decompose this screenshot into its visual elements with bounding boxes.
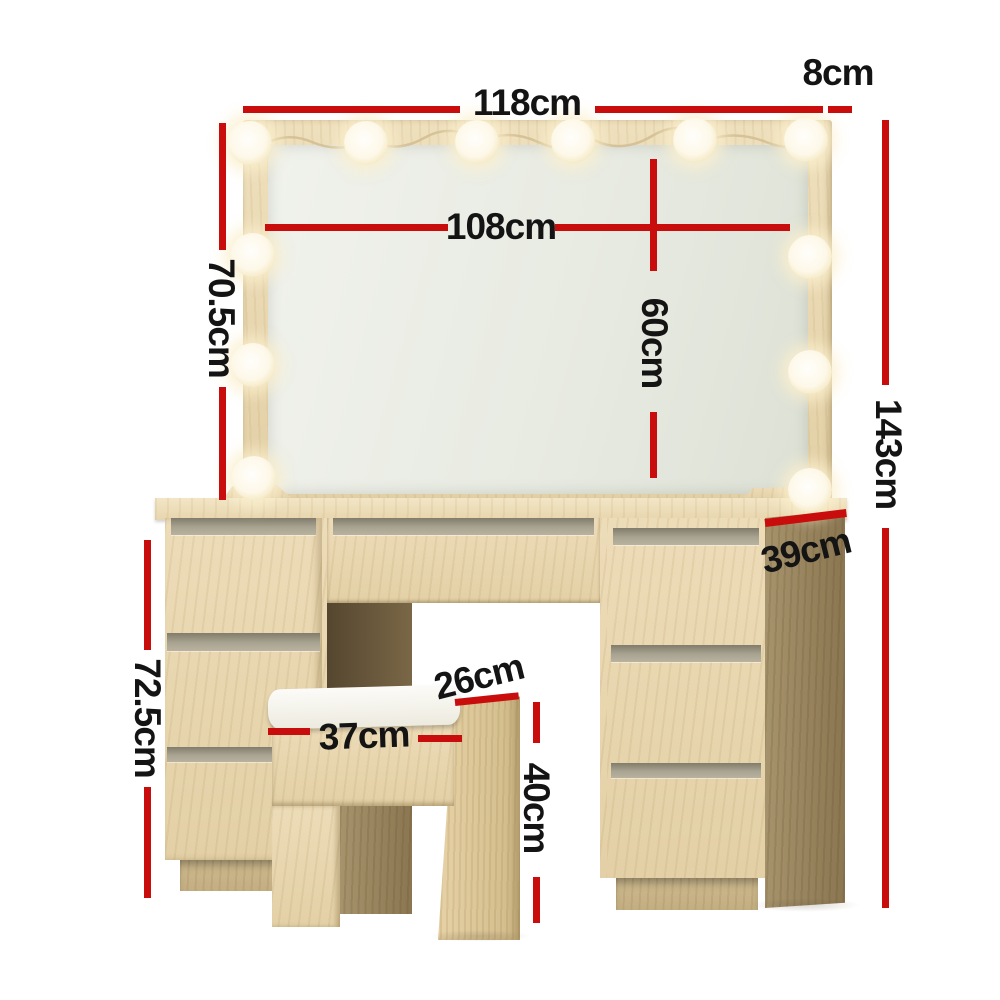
stool-left-leg [272,806,340,927]
dimension-line-72-5cm [144,787,151,898]
dimension-line-70-5cm [219,387,226,500]
dimension-line-37cm [418,735,462,742]
dimension-line-143cm [882,528,889,908]
dimension-line-8cm [828,106,852,113]
dimension-line-108cm [265,224,448,231]
mirror-glass [268,145,808,494]
light-bulb-icon [788,468,832,512]
light-bulb-icon [551,119,595,163]
dimension-line-60cm [650,159,657,271]
light-bulb-icon [784,118,828,162]
dimension-line-72-5cm [144,540,151,650]
dimension-label-60cm: 60cm [633,298,675,389]
desk-top [155,498,847,520]
dimension-line-37cm [268,728,310,735]
dimension-label-72-5cm: 72.5cm [126,658,168,778]
drawer-groove [167,633,320,651]
dimension-line-60cm [650,412,657,478]
desk-right-pedestal [607,518,765,878]
desk-floor-shadow [750,898,860,912]
drawer-groove [611,763,761,778]
dimension-label-108cm: 108cm [446,206,556,248]
dimension-label-37cm: 37cm [318,713,410,758]
dimension-label-8cm: 8cm [802,52,873,94]
dimension-line-70-5cm [219,123,226,250]
stool-inner-leg [340,806,412,914]
dimension-label-70-5cm: 70.5cm [200,258,242,378]
dimension-line-108cm [555,224,790,231]
light-bulb-icon [232,456,276,500]
drawer-groove [171,518,316,535]
desk-carcass-strip-right [600,518,607,878]
stool-floor-shadow [428,930,532,942]
dressing-table-dimension-diagram: 118cm 8cm 108cm 70.5cm 60cm 143cm 39cm 7… [0,0,1000,1000]
dimension-line-118cm [595,106,823,113]
light-cable [256,124,820,160]
light-bulb-icon [344,121,388,165]
dimension-line-40cm [533,877,540,923]
dimension-label-40cm: 40cm [515,763,557,854]
light-bulb-icon [455,120,499,164]
drawer-groove [613,528,759,545]
light-bulb-icon [228,121,272,165]
drawer-groove [333,518,594,535]
dimension-line-40cm [533,702,540,743]
light-bulb-icon [673,118,717,162]
drawer-groove [611,645,761,662]
light-bulb-icon [788,350,832,394]
right-pedestal-base [616,878,758,910]
light-bulb-icon [788,235,832,279]
dimension-line-118cm [243,106,460,113]
dimension-line-143cm [882,120,889,385]
dimension-label-118cm: 118cm [473,82,581,124]
dimension-label-143cm: 143cm [867,399,909,509]
